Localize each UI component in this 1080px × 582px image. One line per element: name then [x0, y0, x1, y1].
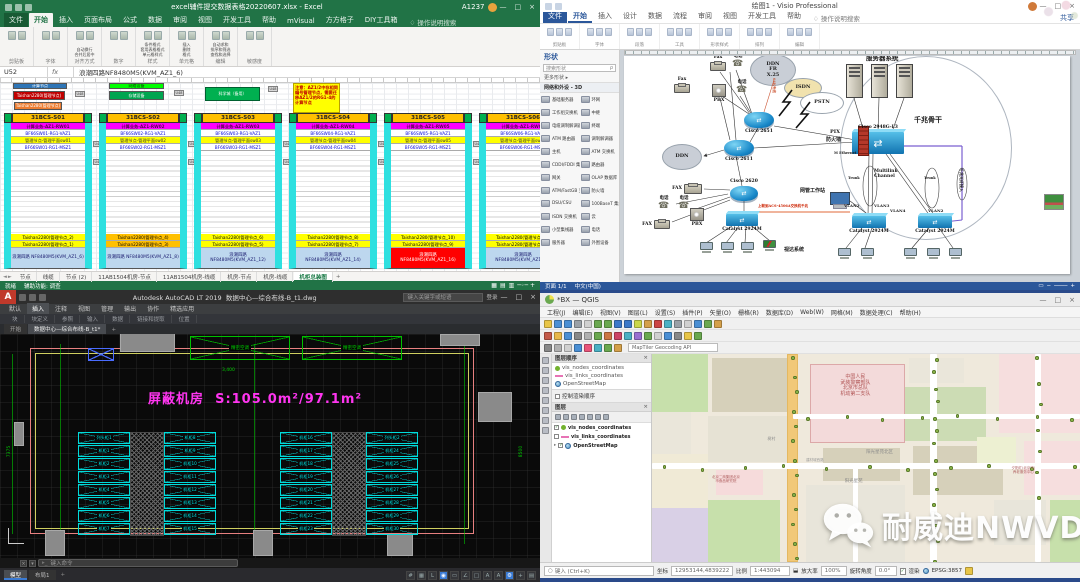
undo-icon[interactable]: [15, 4, 22, 11]
rack-box[interactable]: 机柜17: [280, 445, 332, 457]
file-tab[interactable]: 开始: [4, 324, 27, 334]
sheet-tab-节点[interactable]: 节点: [15, 272, 37, 282]
menu-数据库(D)[interactable]: 数据库(D): [763, 308, 796, 317]
ribbon-button[interactable]: 格式: [183, 52, 191, 57]
pc-shape[interactable]: [927, 248, 940, 259]
tool-icon[interactable]: [565, 28, 572, 36]
panel-链接和提取[interactable]: 链接和提取: [131, 315, 172, 323]
zoom-out-icon[interactable]: −: [1047, 283, 1052, 289]
layers-tool-icon[interactable]: [603, 414, 609, 420]
rack-box[interactable]: 机柜13: [164, 497, 216, 509]
toolbar-icon[interactable]: [704, 320, 712, 328]
status-icon[interactable]: ∠: [461, 571, 470, 580]
menu-插件(P)[interactable]: 插件(P): [679, 308, 705, 317]
rack-box[interactable]: 机柜15: [164, 523, 216, 535]
visio-page[interactable]: DDN FR X.25ISDNPSTNDDN千兆骨干服务器系统⇄Cisco 29…: [624, 56, 1070, 274]
phone-shape[interactable]: ☎: [678, 202, 689, 211]
toolbar-icon[interactable]: [574, 344, 582, 352]
toolbar-icon[interactable]: [594, 332, 602, 340]
messages-icon[interactable]: [965, 567, 973, 575]
stencil-item[interactable]: 主机: [540, 145, 580, 158]
save-icon[interactable]: [19, 294, 26, 301]
rack-box[interactable]: 机柜10: [164, 458, 216, 470]
sheet-tab-11AB1504机房-节点[interactable]: 11AB1504机房-节点: [93, 272, 157, 282]
tab-方方格子[interactable]: 方方格子: [321, 13, 359, 27]
firewall-shape[interactable]: [858, 126, 869, 156]
close-button[interactable]: ×: [530, 293, 536, 301]
tab-插入[interactable]: 插入: [54, 13, 78, 27]
toolbar-icon[interactable]: [544, 344, 552, 352]
switch-shape[interactable]: ⇄: [726, 214, 758, 226]
sheet-tab-机房-节点[interactable]: 机房-节点: [222, 272, 257, 282]
switch-shape[interactable]: ⇄: [852, 216, 886, 228]
minimize-button[interactable]: —: [501, 293, 508, 301]
render-order-checkbox[interactable]: 控制渲染顺序: [552, 390, 651, 403]
server-shape[interactable]: [871, 64, 888, 98]
tool-icon[interactable]: [246, 31, 254, 40]
minimize-button[interactable]: —: [1040, 296, 1047, 304]
add-sheet-icon[interactable]: +: [336, 274, 341, 280]
rack-box[interactable]: 机柜24: [366, 445, 418, 457]
command-input[interactable]: ▸_键入命令: [38, 559, 238, 567]
geocoder-input[interactable]: MapTiler Geocoding API: [628, 343, 718, 352]
rack-box[interactable]: 机柜29: [366, 510, 418, 522]
stencil-item[interactable]: 工作组交换机: [540, 106, 580, 119]
stencil-item[interactable]: 100BaseT 集线器: [580, 197, 620, 210]
layer-checkbox[interactable]: ✓: [558, 443, 563, 448]
phone-shape[interactable]: ☎: [736, 86, 747, 95]
zoom-slider[interactable]: ────: [1054, 283, 1067, 289]
stencil-item[interactable]: 环网: [580, 93, 620, 106]
panel-toggle-icon[interactable]: [542, 357, 549, 364]
status-icon[interactable]: ◉: [439, 571, 448, 580]
rack-box[interactable]: 机柜5: [78, 497, 130, 509]
map-canvas[interactable]: 中国人民 武装警察部队 北京市总队 机动第二支队阳光星苑北区阳光星苑树村建材城西…: [652, 354, 1080, 562]
rack-box[interactable]: 机柜21: [280, 497, 332, 509]
status-icon[interactable]: A: [494, 571, 503, 580]
toolbar-icon[interactable]: [564, 344, 572, 352]
layers-tool-icon[interactable]: [587, 414, 593, 420]
phone-shape[interactable]: ☎: [732, 60, 743, 69]
coordinate-value[interactable]: 12953144,4839222: [671, 566, 733, 576]
tab-页面布局[interactable]: 页面布局: [79, 13, 117, 27]
tool-icon[interactable]: [645, 28, 652, 36]
panel-数据[interactable]: 数据: [106, 315, 130, 323]
fax-shape[interactable]: [674, 84, 690, 93]
toolbar-icon[interactable]: [684, 320, 692, 328]
tool-icon[interactable]: [188, 31, 196, 40]
menu-工程(J)[interactable]: 工程(J): [544, 308, 568, 317]
save-icon[interactable]: [545, 3, 552, 10]
panel-toggle-icon[interactable]: [542, 427, 549, 434]
tool-icon[interactable]: [636, 28, 643, 36]
tool-icon[interactable]: [18, 31, 26, 40]
layer-row-vis_nodes_coordinates[interactable]: ✓vis_nodes_coordinates: [552, 423, 651, 432]
tab-mVisual[interactable]: mVisual: [282, 15, 320, 27]
tool-icon[interactable]: [765, 28, 772, 36]
ribbon-button[interactable]: 合并后居中: [75, 52, 95, 57]
zoom-slider[interactable]: ─◦─ +: [517, 282, 535, 289]
toolbar-icon[interactable]: [624, 320, 632, 328]
tool-icon[interactable]: [756, 28, 763, 36]
close-icon[interactable]: ×: [643, 404, 648, 410]
toolbar-icon[interactable]: [554, 344, 562, 352]
tool-icon[interactable]: [144, 31, 152, 40]
toolbar-icon[interactable]: [604, 332, 612, 340]
stencil-item[interactable]: 电缆调制解调器: [540, 119, 580, 132]
panel-toggle-icon[interactable]: [542, 377, 549, 384]
tab-注释[interactable]: 注释: [50, 303, 72, 314]
toolbar-icon[interactable]: [554, 320, 562, 328]
toolbar-icon[interactable]: [594, 344, 602, 352]
rack-box[interactable]: 机柜4: [78, 484, 130, 496]
rack-box[interactable]: 机柜19: [280, 471, 332, 483]
close-icon[interactable]: ×: [643, 355, 648, 361]
close-button[interactable]: ×: [529, 3, 535, 11]
panel-输入[interactable]: 输入: [81, 315, 105, 323]
stencil-item[interactable]: 小型集线器: [540, 223, 580, 236]
stencil-item[interactable]: ISDN 交换机: [540, 210, 580, 223]
tool-icon[interactable]: [52, 31, 60, 40]
sheet-tab-机柜总装图[interactable]: 机柜总装图: [294, 272, 333, 282]
pc-shape[interactable]: [838, 248, 851, 259]
pc-shape[interactable]: [861, 248, 874, 259]
close-button[interactable]: ×: [1069, 2, 1075, 10]
server-shape[interactable]: [846, 64, 863, 98]
pbx-shape[interactable]: [712, 84, 726, 97]
tool-icon[interactable]: [8, 31, 16, 40]
tool-icon[interactable]: [596, 28, 603, 36]
pc-shape[interactable]: [721, 242, 734, 253]
tool-icon[interactable]: [747, 28, 754, 36]
sheet-tab-节点 (2)[interactable]: 节点 (2): [61, 272, 93, 282]
toolbar-icon[interactable]: [544, 332, 552, 340]
rack-box[interactable]: 机柜28: [366, 497, 418, 509]
avatar[interactable]: [1028, 2, 1037, 11]
rack-box[interactable]: 机柜18: [280, 458, 332, 470]
panel-块[interactable]: 块: [6, 315, 25, 323]
menu-Web(W)[interactable]: Web(W): [797, 309, 827, 316]
stencil-tab[interactable]: 网络和外设 - 3D: [540, 82, 619, 93]
fax-shape[interactable]: [654, 220, 670, 229]
toolbar-icon[interactable]: [644, 320, 652, 328]
toolbar-icon[interactable]: [574, 320, 582, 328]
rack-box[interactable]: 机柜2: [78, 458, 130, 470]
menu-图层(L)[interactable]: 图层(L): [625, 308, 651, 317]
formula-value[interactable]: 浪潮四路NF8480M5(KVM_AZ1_6): [74, 67, 188, 77]
switch-shape[interactable]: ⇄: [918, 216, 952, 228]
toolbar-icon[interactable]: [584, 320, 592, 328]
toolbar-icon[interactable]: [554, 332, 562, 340]
toolbar-icon[interactable]: [614, 344, 622, 352]
ribbon-button[interactable]: 单元格样式: [143, 52, 163, 57]
fax-shape[interactable]: [684, 184, 702, 194]
redo-icon[interactable]: [25, 4, 32, 11]
rack-box[interactable]: 机柜23: [280, 523, 332, 535]
tab-协作[interactable]: 协作: [142, 303, 164, 314]
tab-视图[interactable]: 视图: [73, 303, 95, 314]
stencil-item[interactable]: 路由器: [580, 158, 620, 171]
toolbar-icon[interactable]: [614, 332, 622, 340]
tab-DIY工具箱[interactable]: DIY工具箱: [360, 13, 403, 27]
sheet-tab-线缆[interactable]: 线缆: [38, 272, 60, 282]
new-drawing-icon[interactable]: +: [107, 326, 120, 334]
order-item[interactable]: vis_links_coordinates: [552, 372, 651, 380]
undo-icon[interactable]: [555, 3, 562, 10]
tab-插入[interactable]: 插入: [27, 303, 49, 314]
status-icon[interactable]: ▤: [527, 571, 536, 580]
menu-网格(M)[interactable]: 网格(M): [828, 308, 856, 317]
rack-box[interactable]: 机柜6: [78, 510, 130, 522]
toolbar-icon[interactable]: [564, 320, 572, 328]
rack-box[interactable]: 机柜3: [78, 471, 130, 483]
pc-shape[interactable]: [904, 248, 917, 259]
rack-box[interactable]: 机柜30: [366, 523, 418, 535]
stencil-item[interactable]: 网关: [540, 171, 580, 184]
scale-value[interactable]: 1:443094: [750, 566, 790, 576]
status-icon[interactable]: L: [428, 571, 437, 580]
panel-参照[interactable]: 参照: [56, 315, 80, 323]
panel-toggle-icon[interactable]: [542, 367, 549, 374]
tab-公式[interactable]: 公式: [118, 13, 142, 27]
rack-box[interactable]: 机柜27: [366, 484, 418, 496]
toolbar-icon[interactable]: [604, 320, 612, 328]
tab-输出[interactable]: 输出: [119, 303, 141, 314]
rack-box[interactable]: 机柜20: [280, 484, 332, 496]
add-layout-icon[interactable]: +: [58, 572, 69, 578]
order-item[interactable]: vis_nodes_coordinates: [552, 364, 651, 372]
lock-icon[interactable]: ⬓: [793, 568, 798, 574]
toolbar-icon[interactable]: [674, 320, 682, 328]
toolbar-icon[interactable]: [674, 332, 682, 340]
autocad-logo[interactable]: A: [0, 290, 16, 304]
tool-icon[interactable]: [76, 31, 84, 40]
panel-块定义[interactable]: 块定义: [26, 315, 56, 323]
toolbar-icon[interactable]: [544, 320, 552, 328]
toolbar-icon[interactable]: [664, 320, 672, 328]
tool-icon[interactable]: [547, 28, 554, 36]
toolbar-icon[interactable]: [574, 332, 582, 340]
rack-box[interactable]: 机柜14: [164, 510, 216, 522]
status-icon[interactable]: A: [483, 571, 492, 580]
panel-位置[interactable]: 位置: [173, 315, 197, 323]
expand-icon[interactable]: ▸: [554, 443, 556, 448]
ribbon-button[interactable]: 查找和选择: [211, 52, 231, 57]
toolbar-icon[interactable]: [684, 332, 692, 340]
layout-tab-布局1[interactable]: 布局1: [29, 570, 56, 580]
tool-icon[interactable]: [222, 31, 230, 40]
panel-toggle-icon[interactable]: [542, 387, 549, 394]
tab-精选应用[interactable]: 精选应用: [165, 303, 199, 314]
maximize-button[interactable]: □: [1055, 2, 1062, 10]
stencil-item[interactable]: 云: [580, 210, 620, 223]
toolbar-icon[interactable]: [594, 320, 602, 328]
status-icon[interactable]: +: [516, 571, 525, 580]
stencil-item[interactable]: ATM 交换机: [580, 145, 620, 158]
rack-box[interactable]: 列头柜1: [78, 432, 130, 444]
server-shape[interactable]: [896, 64, 913, 98]
tool-icon[interactable]: [725, 28, 732, 36]
page-break-icon[interactable]: ▥: [509, 282, 515, 289]
tool-icon[interactable]: [256, 31, 264, 40]
drawing-canvas[interactable]: 精密空调 精密空调 屏蔽机房 S:105.0m²/97.1m² 7375 850…: [0, 334, 540, 558]
stencil-item[interactable]: ATM/FastGB 交换机: [540, 184, 580, 197]
undo-icon[interactable]: [39, 294, 46, 301]
layer-checkbox[interactable]: ✓: [554, 425, 559, 430]
layers-tool-icon[interactable]: [595, 414, 601, 420]
pbx-shape[interactable]: [690, 208, 704, 221]
avatar[interactable]: [488, 3, 497, 12]
stencil-item[interactable]: 调制解调器: [580, 132, 620, 145]
sheet-tab-机房-线缆[interactable]: 机房-线缆: [258, 272, 293, 282]
rack-box[interactable]: 机柜7: [78, 523, 130, 535]
help-search-input[interactable]: 键入关键字或短语: [403, 293, 483, 302]
fit-page-icon[interactable]: ▭: [1038, 283, 1043, 289]
tab-开始[interactable]: 开始: [29, 13, 53, 27]
rack-box[interactable]: 机柜16: [280, 432, 332, 444]
sign-in-link[interactable]: 登录: [486, 293, 497, 301]
tool-icon[interactable]: [110, 31, 118, 40]
close-command-icon[interactable]: ×: [20, 560, 27, 567]
phone-shape[interactable]: ☎: [658, 202, 669, 211]
rack-box[interactable]: 机柜25: [366, 458, 418, 470]
stencil-item[interactable]: 基础服务器: [540, 93, 580, 106]
more-shapes-button[interactable]: 更多形状 ▸: [540, 73, 619, 82]
toolbar-icon[interactable]: [604, 344, 612, 352]
tab-管理[interactable]: 管理: [96, 303, 118, 314]
toolbar-icon[interactable]: [624, 332, 632, 340]
normal-view-icon[interactable]: ▦: [491, 282, 497, 289]
stencil-item[interactable]: 服务器: [540, 236, 580, 249]
sheet-tab-11AB1504机房-线缆[interactable]: 11AB1504机房-线缆: [158, 272, 222, 282]
tool-icon[interactable]: [42, 31, 50, 40]
tab-数据[interactable]: 数据: [143, 13, 167, 27]
rack-box[interactable]: 机柜9: [164, 445, 216, 457]
stencil-item[interactable]: 外围设备: [580, 236, 620, 249]
layers-tool-icon[interactable]: [571, 414, 577, 420]
layer-row-OpenStreetMap[interactable]: ▸✓OpenStreetMap: [552, 441, 651, 450]
tool-icon[interactable]: [556, 28, 563, 36]
tell-me-search[interactable]: ♢ 操作说明搜索: [409, 17, 456, 27]
panel-toggle-icon[interactable]: [542, 397, 549, 404]
save-icon[interactable]: [5, 4, 12, 11]
minimize-button[interactable]: —: [1040, 2, 1047, 10]
toolbar-icon[interactable]: [584, 344, 592, 352]
stencil-item[interactable]: ATM 路由器: [540, 132, 580, 145]
tab-开发工具[interactable]: 开发工具: [218, 13, 256, 27]
toolbar-icon[interactable]: [634, 332, 642, 340]
customize-command-icon[interactable]: ▾: [29, 560, 36, 567]
stencil-item[interactable]: 终端: [580, 119, 620, 132]
router-shape[interactable]: ⇄: [730, 186, 758, 201]
pc-shape[interactable]: [700, 242, 713, 253]
name-box[interactable]: U52: [0, 67, 48, 77]
layers-tool-icon[interactable]: [579, 414, 585, 420]
tool-icon[interactable]: [212, 31, 220, 40]
shape-search-input[interactable]: 搜索形状ρ: [543, 64, 616, 72]
stencil-item[interactable]: 电话: [580, 223, 620, 236]
menu-栅格(R)[interactable]: 栅格(R): [735, 308, 762, 317]
layer-row-vis_links_coordinates[interactable]: vis_links_coordinates: [552, 432, 651, 441]
fax-shape[interactable]: [710, 62, 726, 71]
status-icon[interactable]: ▭: [450, 571, 459, 580]
tool-icon[interactable]: [605, 28, 612, 36]
sheet-nav-left-icon[interactable]: ◄: [3, 274, 7, 280]
status-icon[interactable]: □: [472, 571, 481, 580]
crs-value[interactable]: EPSG:3857: [932, 568, 962, 574]
excel-grid[interactable]: 注意：AZ1/2中存相同编号管理节点，需要迁移AZ1/2的RG1-4的计算节点 …: [0, 83, 540, 271]
tool-icon[interactable]: [627, 28, 634, 36]
tool-icon[interactable]: [707, 28, 714, 36]
tool-icon[interactable]: [787, 28, 794, 36]
menu-编辑(E)[interactable]: 编辑(E): [569, 308, 595, 317]
toolbar-icon[interactable]: [584, 332, 592, 340]
stencil-item[interactable]: 防火墙: [580, 184, 620, 197]
tool-icon[interactable]: [667, 28, 674, 36]
menu-视图(V)[interactable]: 视图(V): [597, 308, 624, 317]
tool-icon[interactable]: [685, 28, 692, 36]
rack-box[interactable]: 机柜12: [164, 484, 216, 496]
tool-icon[interactable]: [805, 28, 812, 36]
tool-icon[interactable]: [587, 28, 594, 36]
tool-icon[interactable]: [716, 28, 723, 36]
page-layout-icon[interactable]: ▤: [500, 282, 506, 289]
share-button[interactable]: 共享: [1060, 13, 1080, 23]
tab-视图[interactable]: 视图: [193, 13, 217, 27]
stencil-item[interactable]: CDDI/FDDI 集中器: [540, 158, 580, 171]
rack-box[interactable]: 机柜11: [164, 471, 216, 483]
close-button[interactable]: ×: [1069, 296, 1075, 304]
rack-box[interactable]: 机柜8: [164, 432, 216, 444]
rack-box[interactable]: 机柜26: [366, 471, 418, 483]
router-shape[interactable]: ⇄: [724, 140, 754, 156]
maximize-button[interactable]: □: [1055, 296, 1062, 304]
tool-icon[interactable]: [676, 28, 683, 36]
menu-数据处理(C)[interactable]: 数据处理(C): [857, 308, 896, 317]
locator-search-input[interactable]: ○键入 (Ctrl+K): [544, 566, 654, 576]
status-icon[interactable]: ⚙: [505, 571, 514, 580]
layer-checkbox[interactable]: [554, 434, 559, 439]
panel-toggle-icon[interactable]: [542, 417, 549, 424]
panel-toggle-icon[interactable]: [542, 407, 549, 414]
sheet-nav-right-icon[interactable]: ►: [8, 274, 12, 280]
visio-canvas[interactable]: DDN FR X.25ISDNPSTNDDN千兆骨干服务器系统⇄Cisco 29…: [620, 50, 1080, 282]
layers-tool-icon[interactable]: [563, 414, 569, 420]
tab-帮助[interactable]: 帮助: [257, 13, 281, 27]
menu-设置(S)[interactable]: 设置(S): [652, 308, 679, 317]
render-checkbox[interactable]: ✓: [900, 568, 906, 574]
tool-icon[interactable]: [120, 31, 128, 40]
stencil-item[interactable]: 中继: [580, 106, 620, 119]
tab-文件[interactable]: 文件: [4, 13, 28, 27]
toolbar-icon[interactable]: [694, 332, 702, 340]
toolbar-icon[interactable]: [644, 332, 652, 340]
toolbar-icon[interactable]: [654, 332, 662, 340]
minimize-button[interactable]: —: [500, 3, 507, 11]
maximize-button[interactable]: □: [515, 3, 522, 11]
magnifier-value[interactable]: 100%: [821, 566, 847, 576]
rotation-value[interactable]: 0.0°: [875, 566, 897, 576]
video-pc-shape[interactable]: [763, 240, 776, 251]
menu-帮助(H)[interactable]: 帮助(H): [897, 308, 924, 317]
toolbar-icon[interactable]: [654, 320, 662, 328]
toolbar-icon[interactable]: [634, 320, 642, 328]
order-item[interactable]: OpenStreetMap: [552, 380, 651, 388]
toolbar-icon[interactable]: [614, 320, 622, 328]
toolbar-icon[interactable]: [664, 332, 672, 340]
toolbar-icon[interactable]: [694, 320, 702, 328]
tool-icon[interactable]: [154, 31, 162, 40]
